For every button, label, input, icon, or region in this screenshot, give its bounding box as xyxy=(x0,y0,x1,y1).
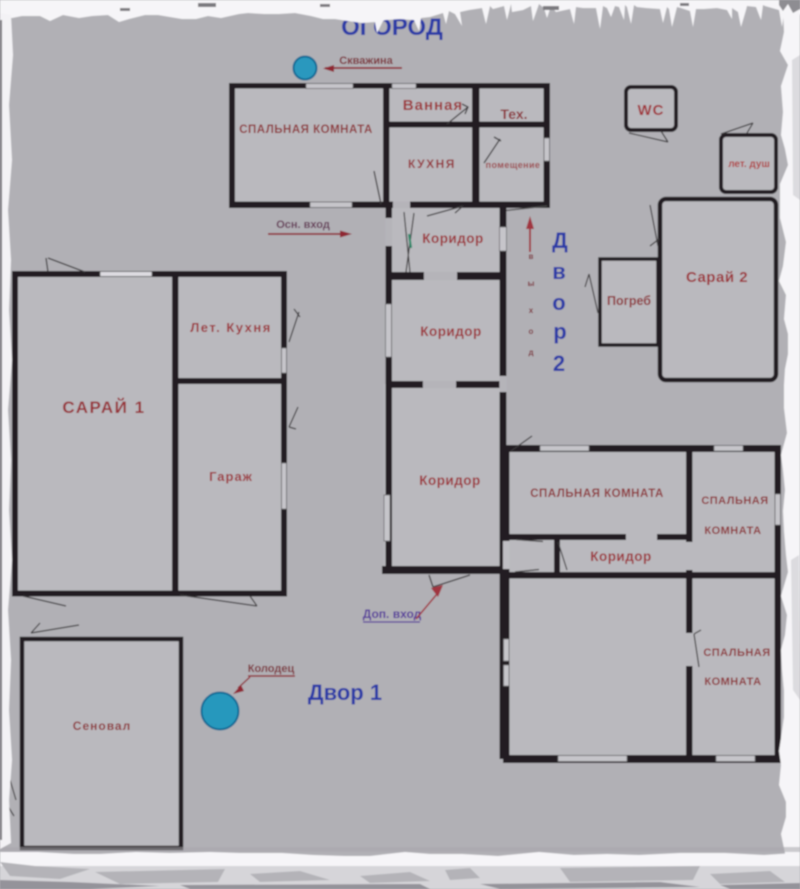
svg-text:Коридор: Коридор xyxy=(419,473,481,488)
svg-text:КУХНЯ: КУХНЯ xyxy=(408,157,456,171)
svg-text:Коридор: Коридор xyxy=(420,324,482,339)
svg-text:СПАЛЬНАЯ: СПАЛЬНАЯ xyxy=(703,647,770,659)
svg-text:Сарай 2: Сарай 2 xyxy=(686,269,748,286)
svg-text:Колодец: Колодец xyxy=(248,663,295,675)
svg-text:помещение: помещение xyxy=(486,160,541,170)
svg-text:2: 2 xyxy=(553,351,565,376)
svg-text:о: о xyxy=(529,327,534,336)
svg-text:о: о xyxy=(552,290,565,315)
svg-text:САРАЙ 1: САРАЙ 1 xyxy=(62,398,145,417)
svg-text:ы: ы xyxy=(528,279,535,288)
svg-text:СПАЛЬНАЯ КОМНАТА: СПАЛЬНАЯ КОМНАТА xyxy=(239,124,373,136)
svg-text:в: в xyxy=(552,259,566,284)
svg-text:Гараж: Гараж xyxy=(209,469,253,484)
svg-text:КОМНАТА: КОМНАТА xyxy=(704,676,761,688)
svg-text:Коридор: Коридор xyxy=(422,231,484,246)
svg-text:Тех.: Тех. xyxy=(500,106,527,122)
svg-text:д: д xyxy=(528,348,533,357)
svg-text:Сеновал: Сеновал xyxy=(73,719,131,733)
svg-text:х: х xyxy=(529,306,534,315)
svg-text:в: в xyxy=(529,252,534,261)
svg-text:СПАЛЬНАЯ: СПАЛЬНАЯ xyxy=(701,495,768,507)
svg-text:р: р xyxy=(553,319,566,344)
svg-text:Д: Д xyxy=(552,228,568,253)
svg-text:Двор 1: Двор 1 xyxy=(308,680,382,705)
svg-text:лет. душ: лет. душ xyxy=(728,159,770,170)
svg-text:Скважина: Скважина xyxy=(339,55,393,67)
svg-text:WC: WC xyxy=(638,102,665,119)
svg-text:КОМНАТА: КОМНАТА xyxy=(704,525,761,537)
svg-text:Доп. вход: Доп. вход xyxy=(363,607,422,621)
svg-text:Ванная: Ванная xyxy=(403,97,463,114)
svg-text:Осн. вход: Осн. вход xyxy=(276,219,330,231)
svg-text:Погреб: Погреб xyxy=(607,294,651,308)
svg-text:Лет. Кухня: Лет. Кухня xyxy=(190,320,272,335)
svg-text:Коридор: Коридор xyxy=(590,549,652,564)
svg-text:СПАЛЬНАЯ КОМНАТА: СПАЛЬНАЯ КОМНАТА xyxy=(530,488,664,500)
